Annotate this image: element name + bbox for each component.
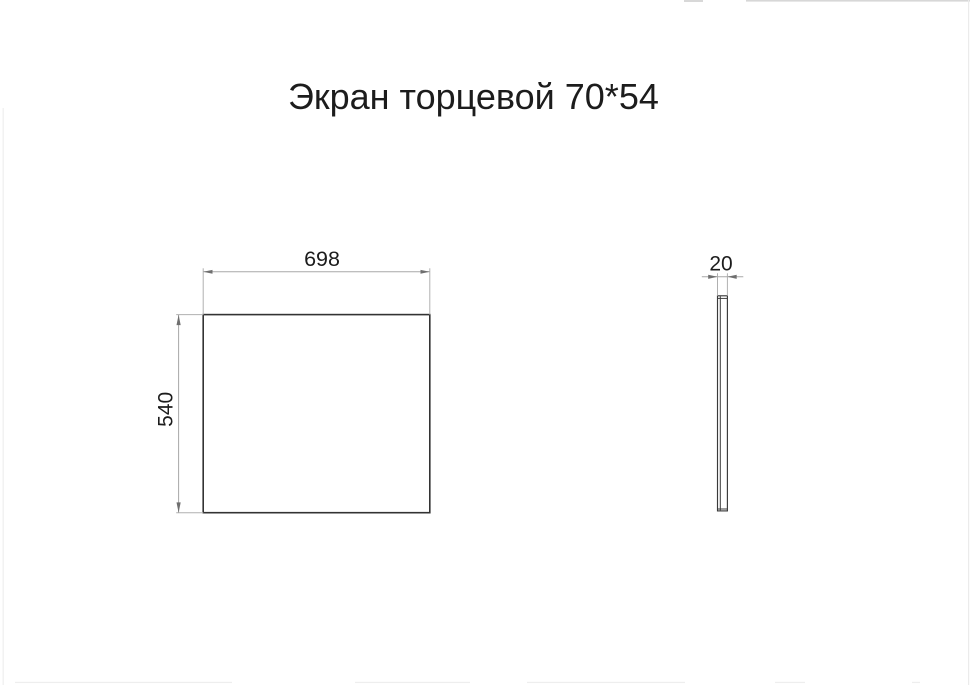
svg-text:Экран торцевой 70*54: Экран торцевой 70*54 [288, 76, 659, 117]
svg-text:698: 698 [304, 247, 340, 271]
svg-text:20: 20 [709, 252, 732, 275]
svg-text:540: 540 [155, 392, 178, 427]
